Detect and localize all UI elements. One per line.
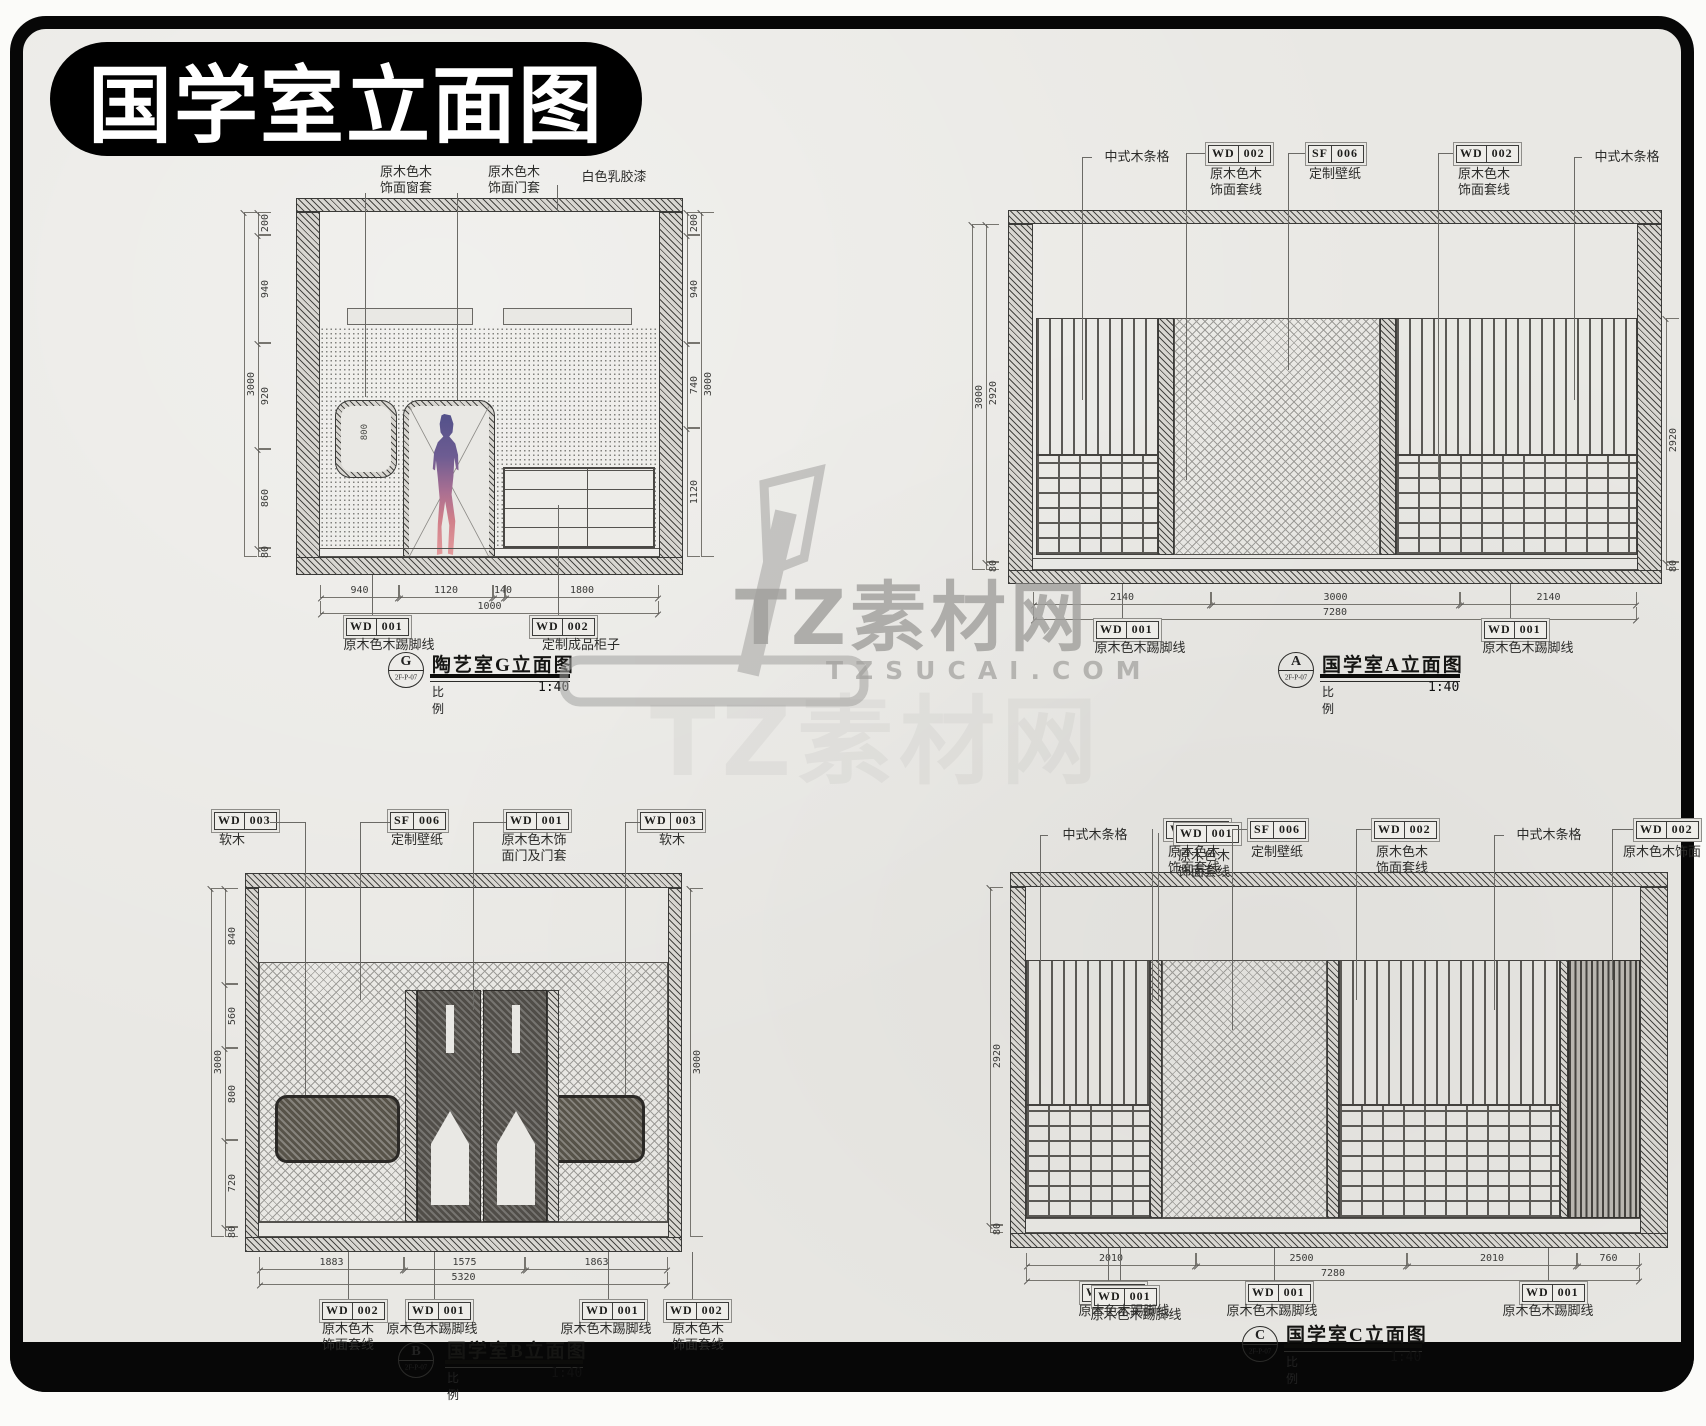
b-tag-skirt-l: WD001 bbox=[408, 1302, 471, 1320]
dim-value: 1120 bbox=[399, 585, 493, 598]
dim-value: 2920 bbox=[992, 1044, 1003, 1068]
tag-num: 002 bbox=[1239, 146, 1270, 162]
c-tag-wallpaper: SF006 bbox=[1250, 821, 1306, 839]
dim-value: 140 bbox=[493, 585, 505, 598]
a-leader-line bbox=[1288, 153, 1306, 154]
tag-code: WD bbox=[409, 1303, 439, 1319]
dim-value: 1863 bbox=[525, 1257, 668, 1270]
dim-value: 80 bbox=[260, 546, 271, 558]
b-dim-right-total: 3000 bbox=[690, 888, 703, 1237]
c-lattice-left-lower bbox=[1026, 1105, 1150, 1218]
watermark-ghost: TZ素材网 bbox=[650, 664, 1103, 803]
c-tag-leader bbox=[1120, 1248, 1121, 1288]
a-post bbox=[1380, 318, 1396, 555]
sheet-title: 国学室立面图 bbox=[88, 39, 604, 160]
tag-num: 001 bbox=[1553, 1285, 1584, 1301]
dim-value: 940 bbox=[260, 280, 271, 298]
a-title-name: 国学室A立面图 bbox=[1322, 650, 1464, 677]
a-leader-line bbox=[1186, 153, 1206, 154]
c-label-casing-right: 原木色木 饰面套线 bbox=[1364, 844, 1440, 876]
tag-num: 001 bbox=[1515, 622, 1546, 638]
a-label-casing-right: 原木色木 饰面套线 bbox=[1446, 166, 1522, 198]
dim-value: 920 bbox=[260, 387, 271, 405]
a-lattice-left-lower bbox=[1036, 455, 1158, 555]
c-wall-floor bbox=[1010, 1233, 1668, 1248]
c-lattice-left-upper bbox=[1026, 960, 1150, 1105]
c-tag-skirt-mid-name: 原木色木踢脚线 bbox=[1214, 1303, 1330, 1319]
b-title-name: 国学室B立面图 bbox=[447, 1336, 588, 1363]
b-tag-cork-right: WD003 bbox=[640, 812, 703, 830]
c-stripe-panel bbox=[1568, 960, 1640, 1218]
c-wallpaper-panel bbox=[1162, 960, 1327, 1218]
b-door-slot bbox=[446, 1005, 454, 1053]
b-door-jamb-right bbox=[547, 990, 559, 1222]
c-tag-skirt-mid: WD001 bbox=[1248, 1284, 1311, 1302]
dim-value: 5320 bbox=[259, 1272, 668, 1285]
b-door-leaf-right bbox=[483, 990, 547, 1222]
b-label-cork-right: 软木 bbox=[648, 832, 696, 848]
b-tag-casing-r: WD002 bbox=[666, 1302, 729, 1320]
b-leader-line bbox=[360, 822, 361, 1000]
tag-num: 001 bbox=[1279, 1285, 1310, 1301]
title-rule bbox=[430, 674, 570, 678]
view-ref: 2F-P-07 bbox=[392, 672, 421, 683]
dim-value: 940 bbox=[320, 585, 399, 598]
b-tag-skirt-r-name: 原木色木踢脚线 bbox=[548, 1321, 664, 1337]
a-leader-line bbox=[1082, 157, 1092, 158]
a-title-symbol: A 2F-P-07 bbox=[1278, 652, 1314, 688]
c-leader-line bbox=[1152, 829, 1153, 1000]
sheet-title-banner: 国学室立面图 bbox=[50, 42, 642, 156]
b-tag-leader bbox=[434, 1252, 435, 1302]
b-leader-line bbox=[473, 822, 506, 823]
c-leader-line bbox=[1356, 829, 1372, 830]
b-tag-leader bbox=[608, 1252, 609, 1302]
b-label-cork-left: 软木 bbox=[200, 832, 264, 848]
dim-value: 1575 bbox=[404, 1257, 525, 1270]
a-wallpaper-panel bbox=[1174, 318, 1380, 555]
tag-num: 001 bbox=[439, 1303, 470, 1319]
dim-value: 860 bbox=[260, 489, 271, 507]
g-label-window-casing: 原木色木 饰面窗套 bbox=[356, 164, 456, 196]
c-post bbox=[1327, 960, 1339, 1218]
c-label-casing-overlap-2: 原木色木 饰面套线 bbox=[1166, 848, 1242, 880]
b-wall-left bbox=[245, 888, 259, 1252]
c-tag-skirt-right: WD001 bbox=[1522, 1284, 1585, 1302]
title-rule bbox=[445, 1360, 583, 1364]
dim-value: 3000 bbox=[692, 1050, 703, 1074]
c-scale-label: 比例 bbox=[1286, 1353, 1298, 1387]
a-tag-skirting-right-name: 原木色木踢脚线 bbox=[1468, 640, 1588, 656]
a-leader-line bbox=[1186, 153, 1187, 480]
title-rule bbox=[1320, 674, 1460, 678]
sheet-bottom-band bbox=[10, 1342, 1694, 1392]
tag-num: 002 bbox=[353, 1303, 384, 1319]
a-scale-value: 1:40 bbox=[1428, 680, 1459, 695]
g-dim-left-total: 3000 bbox=[244, 212, 257, 557]
b-dim-left-total: 3000 bbox=[211, 888, 224, 1237]
drawing-sheet: 国学室立面图 800 原木色木 饰面窗套 原木 bbox=[0, 0, 1706, 1426]
a-leader-line bbox=[1288, 153, 1289, 370]
a-tag-casing-right: WD002 bbox=[1456, 145, 1519, 163]
dim-value: 2920 bbox=[1668, 428, 1679, 452]
b-leader-line bbox=[473, 822, 474, 1010]
c-lattice-right-lower bbox=[1339, 1105, 1560, 1218]
dim-value: 2010 bbox=[1026, 1253, 1196, 1266]
dim-value: 1883 bbox=[259, 1257, 404, 1270]
view-ref: 2F-P-07 bbox=[402, 1362, 431, 1373]
c-title-symbol: C 2F-P-07 bbox=[1242, 1326, 1278, 1362]
dim-value: 2010 bbox=[1407, 1253, 1577, 1266]
dim-value: 7280 bbox=[1033, 607, 1637, 620]
a-tag-skirting-left-name: 原木色木踢脚线 bbox=[1080, 640, 1200, 656]
a-dim-right-chain: 2920 80 bbox=[1666, 318, 1679, 570]
b-label-wallpaper: 定制壁纸 bbox=[382, 832, 452, 848]
tag-code: WD bbox=[215, 813, 245, 829]
dim-value: 800 bbox=[227, 1085, 238, 1103]
b-leader-line bbox=[270, 822, 305, 823]
b-tag-cork-left: WD003 bbox=[214, 812, 277, 830]
dim-value: 80 bbox=[1668, 560, 1679, 572]
c-title-name: 国学室C立面图 bbox=[1286, 1320, 1428, 1347]
dim-value: 840 bbox=[227, 927, 238, 945]
a-leader-line bbox=[1082, 157, 1083, 400]
g-dim-left-chain: 200 940 920 860 80 bbox=[258, 212, 271, 557]
dim-value: 740 bbox=[689, 376, 700, 394]
a-label-casing-left: 原木色木 饰面套线 bbox=[1198, 166, 1274, 198]
g-scale-label: 比例 bbox=[432, 683, 444, 717]
tag-code: WD bbox=[1177, 826, 1207, 842]
a-tag-leader bbox=[1510, 584, 1511, 621]
c-leader-line bbox=[1356, 829, 1357, 1000]
a-leader-line bbox=[1438, 153, 1454, 154]
dim-value: 720 bbox=[227, 1174, 238, 1192]
g-label-door-casing: 原木色木 饰面门套 bbox=[464, 164, 564, 196]
a-lattice-left-upper bbox=[1036, 318, 1158, 455]
b-cork-panel-left bbox=[275, 1095, 400, 1163]
c-skirting bbox=[1026, 1218, 1640, 1233]
tag-code: WD bbox=[347, 619, 377, 635]
dim-value: 940 bbox=[689, 280, 700, 298]
a-post bbox=[1158, 318, 1174, 555]
dim-value: 3000 bbox=[703, 372, 714, 396]
b-tag-casing-l: WD002 bbox=[322, 1302, 385, 1320]
b-door-arch-opening bbox=[497, 1111, 535, 1205]
b-dim-left-chain: 840 560 800 720 80 bbox=[225, 888, 238, 1237]
tag-num: 001 bbox=[1127, 622, 1158, 638]
c-lattice-right-upper bbox=[1339, 960, 1560, 1105]
a-label-lattice: 中式木条格 bbox=[1584, 149, 1670, 165]
a-leader-line bbox=[1574, 157, 1575, 400]
g-door-pelmet bbox=[503, 308, 632, 325]
tag-num: 002 bbox=[1487, 146, 1518, 162]
a-wall-left bbox=[1008, 224, 1033, 584]
g-label-paint: 白色乳胶漆 bbox=[564, 169, 664, 185]
g-title-symbol: G 2F-P-07 bbox=[388, 652, 424, 688]
tag-num: 006 bbox=[414, 813, 445, 829]
b-tag-casing-r-name: 原木色木 饰面套线 bbox=[656, 1321, 740, 1353]
b-tag-leader bbox=[348, 1252, 349, 1302]
b-tag-skirt-l-name: 原木色木踢脚线 bbox=[374, 1321, 490, 1337]
tag-code: WD bbox=[1097, 622, 1127, 638]
c-post bbox=[1560, 960, 1568, 1218]
tag-num: 001 bbox=[537, 813, 568, 829]
c-scale-value: 1:40 bbox=[1390, 1350, 1421, 1365]
c-label-lattice-right: 中式木条格 bbox=[1506, 827, 1592, 843]
dim-value: 2500 bbox=[1196, 1253, 1407, 1266]
a-label-lattice: 中式木条格 bbox=[1094, 149, 1180, 165]
c-label-lattice-left: 中式木条格 bbox=[1052, 827, 1138, 843]
a-wall-right bbox=[1637, 224, 1662, 584]
tag-code: WD bbox=[1209, 146, 1239, 162]
dim-value: 3000 bbox=[1211, 592, 1460, 605]
b-wall-right bbox=[668, 888, 682, 1252]
view-letter: B bbox=[399, 1343, 433, 1361]
c-leader-line bbox=[1040, 835, 1041, 1000]
view-ref: 2F-P-07 bbox=[1282, 672, 1311, 683]
tag-code: WD bbox=[583, 1303, 613, 1319]
c-leader-line bbox=[1612, 829, 1613, 980]
dim-value: 80 bbox=[992, 1223, 1003, 1235]
tag-code: WD bbox=[1637, 822, 1667, 838]
a-dim-bottom-chain: 2140 3000 2140 bbox=[1033, 592, 1637, 605]
dim-value: 760 bbox=[1577, 1253, 1640, 1266]
b-tag-skirt-r: WD001 bbox=[582, 1302, 645, 1320]
tag-code: WD bbox=[667, 1303, 697, 1319]
c-leader-line bbox=[1232, 829, 1233, 1030]
g-wall-top bbox=[296, 198, 683, 212]
a-tag-leader bbox=[1122, 584, 1123, 621]
a-leader-line bbox=[1438, 153, 1439, 480]
dim-value: 3000 bbox=[246, 372, 257, 396]
watermark-brand: TZ素材网 bbox=[735, 556, 1090, 666]
b-title-symbol: B 2F-P-07 bbox=[398, 1342, 434, 1378]
a-wall-floor bbox=[1008, 570, 1662, 584]
g-tag-skirting-name: 原木色木踢脚线 bbox=[330, 637, 448, 653]
tag-num: 003 bbox=[245, 813, 276, 829]
a-lattice-right-upper bbox=[1396, 318, 1637, 455]
c-leader-line bbox=[1612, 829, 1634, 830]
b-dim-bottom-total: 5320 bbox=[259, 1272, 668, 1285]
dim-value: 80 bbox=[227, 1226, 238, 1238]
a-dim-bottom-total: 7280 bbox=[1033, 607, 1637, 620]
g-leader-line bbox=[365, 193, 366, 397]
b-leader-line bbox=[360, 822, 390, 823]
tag-num: 001 bbox=[613, 1303, 644, 1319]
b-leader-line bbox=[305, 822, 306, 1095]
tag-code: WD bbox=[507, 813, 537, 829]
g-wall-left bbox=[296, 212, 320, 575]
tag-code: SF bbox=[1251, 822, 1274, 838]
b-leader-line bbox=[625, 822, 626, 1095]
b-door-slot bbox=[512, 1005, 520, 1053]
a-leader-line bbox=[1574, 157, 1582, 158]
dim-value: 200 bbox=[260, 214, 271, 232]
tag-code: WD bbox=[323, 1303, 353, 1319]
b-tag-leader bbox=[692, 1252, 693, 1302]
b-door-leaf-left bbox=[417, 990, 481, 1222]
tag-code: SF bbox=[391, 813, 414, 829]
c-wall-top bbox=[1010, 872, 1668, 887]
g-tag-skirting: WD001 bbox=[346, 618, 409, 636]
tag-code: WD bbox=[641, 813, 671, 829]
a-dim-left-total: 3000 bbox=[972, 224, 985, 570]
g-tag-leader bbox=[372, 575, 373, 618]
tag-code: WD bbox=[1523, 1285, 1553, 1301]
b-door-arch-opening bbox=[431, 1111, 469, 1205]
b-leader-line bbox=[625, 822, 640, 823]
b-tag-wallpaper: SF006 bbox=[390, 812, 446, 830]
tag-num: 002 bbox=[1667, 822, 1698, 838]
dim-value: 3000 bbox=[974, 385, 985, 409]
tag-code: WD bbox=[1375, 822, 1405, 838]
dim-value: 2140 bbox=[1460, 592, 1637, 605]
tag-code: WD bbox=[1485, 622, 1515, 638]
view-ref: 2F-P-07 bbox=[1246, 1346, 1275, 1357]
tag-num: 001 bbox=[377, 619, 408, 635]
c-label-veneer-right: 原木色木饰面 bbox=[1618, 844, 1706, 860]
c-tag-veneer-right: WD002 bbox=[1636, 821, 1699, 839]
c-label-wallpaper: 定制壁纸 bbox=[1242, 844, 1312, 860]
tag-num: 006 bbox=[1274, 822, 1305, 838]
tag-code: WD bbox=[1457, 146, 1487, 162]
c-leader-line bbox=[1494, 835, 1504, 836]
c-tag-skirt-right-name: 原木色木踢脚线 bbox=[1490, 1303, 1606, 1319]
tag-code: SF bbox=[1309, 146, 1332, 162]
b-label-door: 原木色木饰 面门及门套 bbox=[492, 832, 576, 864]
tag-num: 003 bbox=[671, 813, 702, 829]
b-scale-value: 1:40 bbox=[551, 1366, 582, 1381]
a-tag-skirting-right: WD001 bbox=[1484, 621, 1547, 639]
a-skirting bbox=[1033, 558, 1637, 570]
title-rule bbox=[1284, 1344, 1422, 1348]
a-tag-casing-left: WD002 bbox=[1208, 145, 1271, 163]
g-window-dim: 800 bbox=[360, 424, 370, 440]
view-letter: G bbox=[389, 653, 423, 671]
tag-num: 002 bbox=[697, 1303, 728, 1319]
a-tag-wallpaper: SF006 bbox=[1308, 145, 1364, 163]
a-scale-label: 比例 bbox=[1322, 683, 1334, 717]
c-tag-leader bbox=[1108, 1248, 1109, 1284]
b-dim-bottom-chain: 1883 1575 1863 bbox=[259, 1257, 668, 1270]
c-tag-leader bbox=[1548, 1248, 1549, 1284]
b-wall-floor bbox=[245, 1237, 682, 1252]
g-leader-line bbox=[457, 193, 458, 400]
b-tag-door: WD001 bbox=[506, 812, 569, 830]
tag-code: WD bbox=[1249, 1285, 1279, 1301]
b-skirting bbox=[259, 1222, 668, 1237]
c-dim-left-chain: 2920 80 bbox=[990, 887, 1003, 1233]
b-wall-top bbox=[245, 873, 682, 888]
a-tag-skirting-left: WD001 bbox=[1096, 621, 1159, 639]
c-leader-line bbox=[1232, 829, 1248, 830]
view-letter: C bbox=[1243, 1327, 1277, 1345]
dim-value: 2920 bbox=[988, 381, 999, 405]
dim-value: 200 bbox=[689, 214, 700, 232]
c-wall-left bbox=[1010, 887, 1026, 1248]
c-tag-casing-right: WD002 bbox=[1374, 821, 1437, 839]
c-tag-leader bbox=[1274, 1248, 1275, 1284]
c-leader-line bbox=[1494, 835, 1495, 1010]
a-wall-top bbox=[1008, 210, 1662, 224]
a-lattice-right-lower bbox=[1396, 455, 1637, 555]
a-label-wallpaper: 定制壁纸 bbox=[1300, 166, 1370, 182]
c-tag-casing-overlap-2: WD001 bbox=[1176, 825, 1239, 843]
dim-value: 3000 bbox=[213, 1050, 224, 1074]
dim-value: 560 bbox=[227, 1007, 238, 1025]
view-letter: A bbox=[1279, 653, 1313, 671]
b-door-jamb-left bbox=[405, 990, 417, 1222]
c-tag-skirt-overlap-2-name: 原木色木踢脚线 bbox=[1078, 1307, 1194, 1323]
b-scale-label: 比例 bbox=[447, 1369, 459, 1403]
a-dim-left-chain: 2920 80 bbox=[986, 224, 999, 570]
tag-num: 006 bbox=[1332, 146, 1363, 162]
c-wall-right bbox=[1640, 887, 1668, 1248]
tag-num: 002 bbox=[1405, 822, 1436, 838]
c-leader-line bbox=[1040, 835, 1048, 836]
